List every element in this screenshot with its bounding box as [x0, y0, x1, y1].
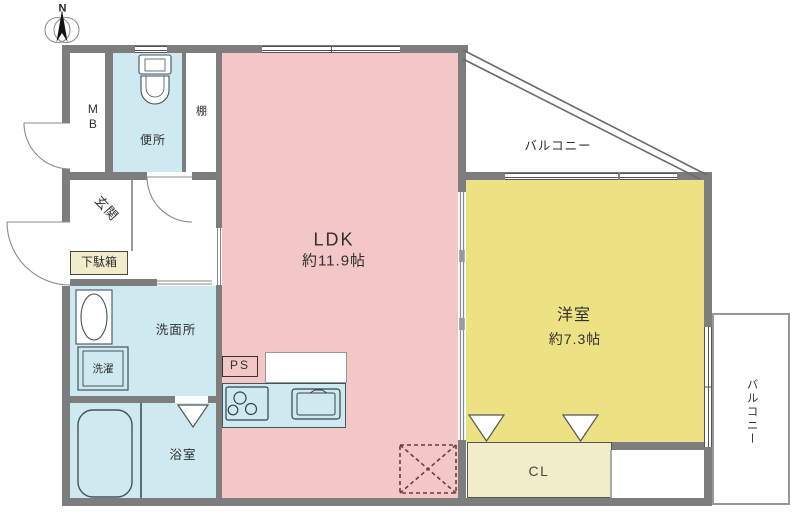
closet-label: CL [529, 463, 550, 479]
western-room-size-label: 約7.3帖 [549, 331, 601, 347]
entrance-door-arc [7, 222, 70, 285]
entrance-step-line [131, 180, 133, 251]
washroom-label: 洗面所 [156, 323, 197, 337]
wall-partition-lower [458, 440, 466, 498]
mb-label: MB [85, 102, 99, 132]
ldk-name-label: LDK [313, 230, 354, 251]
balcony-top-label: バルコニー [524, 139, 591, 153]
ldk-western-door-slot [458, 192, 466, 440]
wall-wash-bath-b [208, 396, 216, 403]
entrance-door-opening [62, 222, 70, 286]
ldk-top-window [262, 46, 400, 53]
mb-door-opening [62, 123, 70, 169]
western-right-window [704, 327, 712, 447]
wall-bottom [62, 498, 712, 506]
ldk-size-label: 約11.9帖 [302, 252, 366, 269]
hall-ldk-door-slot [216, 228, 222, 285]
balcony-railing-diagonal [463, 50, 707, 179]
wall-toilet-shelf [182, 45, 186, 172]
wall-ldk-right-upper [458, 45, 466, 192]
wall-hall-top-a [62, 172, 147, 180]
wall-alcove-top [612, 442, 704, 450]
kitchen-counter [222, 383, 346, 428]
range-hood-box [265, 352, 347, 383]
western-top-window-1 [505, 173, 618, 180]
toilet-door-arc [147, 177, 192, 222]
compass-north-label: N [59, 3, 68, 16]
alcove-left-line [610, 450, 612, 498]
floor-plan: N MB 便所 棚 玄関 下駄箱 洗面所 洗濯 浴室 LDK 約11.9帖 PS… [0, 0, 800, 514]
wall-mb-toilet [105, 45, 113, 180]
toilet-floor [113, 53, 182, 172]
shelf-label: 棚 [196, 106, 208, 119]
ldk-floor [222, 53, 458, 498]
western-top-window-2 [620, 173, 677, 180]
pipe-space-box [222, 356, 258, 377]
toilet-label: 便所 [140, 134, 166, 148]
bathtub-divider-line [140, 403, 142, 498]
laundry-label: 洗濯 [93, 363, 114, 375]
toilet-window [135, 46, 167, 53]
entrance-label: 玄関 [91, 194, 121, 225]
shoe-cabinet-label: 下駄箱 [81, 256, 117, 270]
wall-wash-bath-a [62, 396, 175, 403]
bathroom-label: 浴室 [169, 448, 196, 462]
wall-hall-washroom [62, 279, 157, 286]
balcony-right-label: バルコニー [744, 378, 757, 446]
western-room-name-label: 洋室 [557, 307, 591, 325]
washroom-floor [70, 286, 216, 396]
washroom-sliding-door [157, 281, 212, 284]
wall-hall-top-b [192, 172, 216, 180]
